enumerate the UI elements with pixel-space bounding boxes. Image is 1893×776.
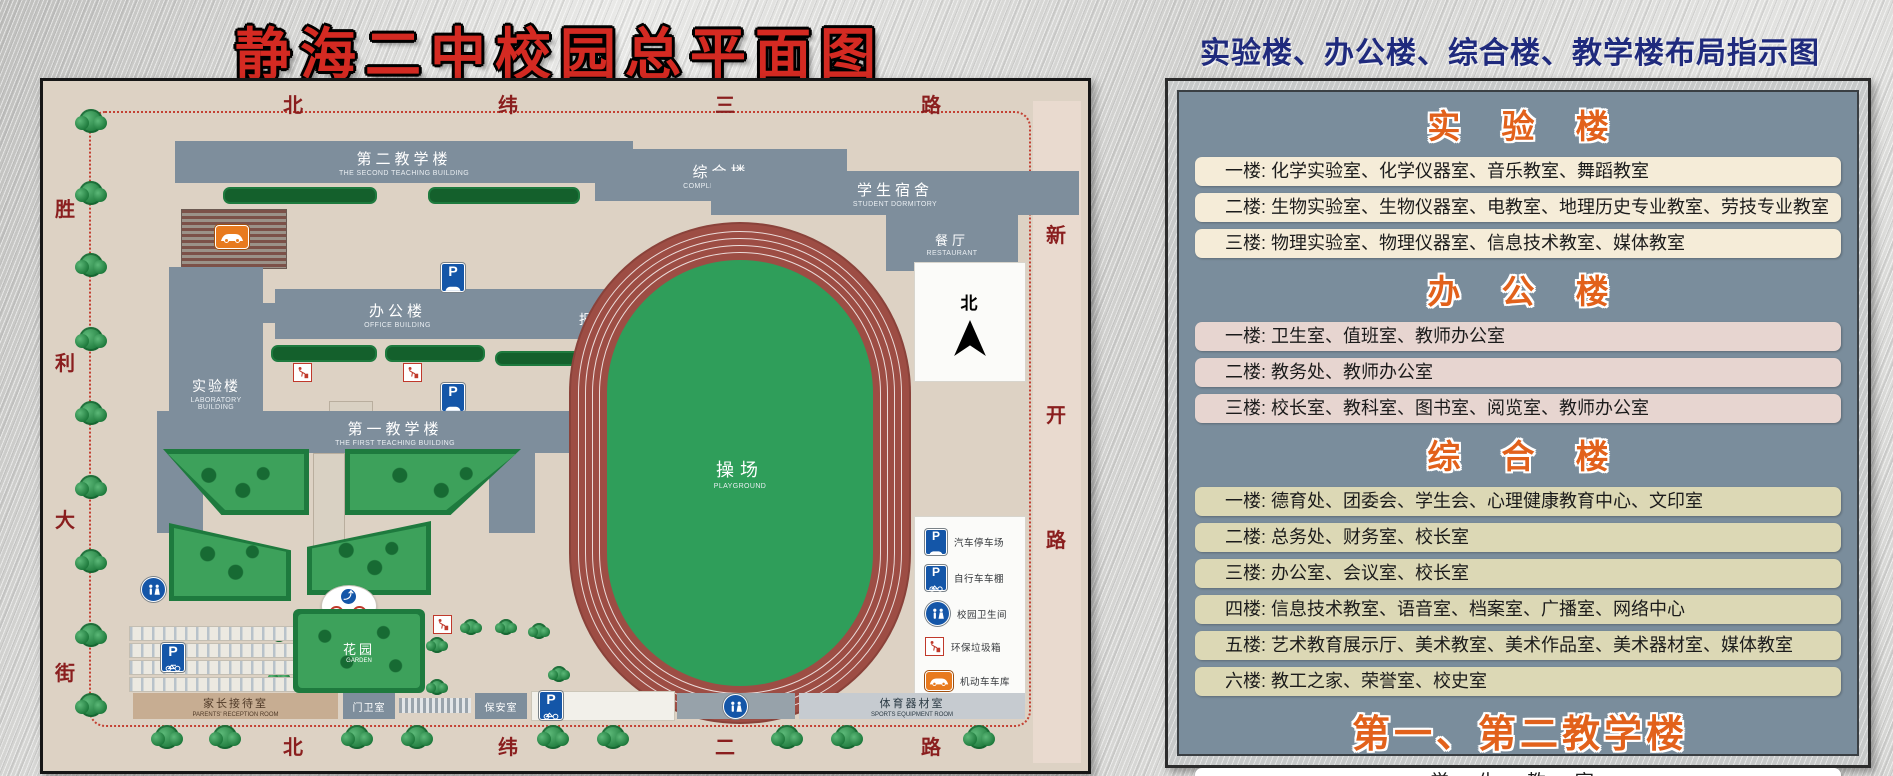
building-label: 第二教学楼 xyxy=(356,148,451,169)
tree-icon xyxy=(775,725,799,749)
floor-row: 一楼: 化学实验室、化学仪器室、音乐教室、舞蹈教室 xyxy=(1195,157,1841,186)
legend-label: 机动车车库 xyxy=(960,674,1010,688)
legend-item: P 汽车停车场 xyxy=(925,529,1004,555)
info-panel-frame: 实 验 楼 一楼: 化学实验室、化学仪器室、音乐教室、舞蹈教室 二楼: 生物实验… xyxy=(1165,78,1871,768)
trash-bin-icon xyxy=(925,637,944,656)
building-security-room: 保安室 xyxy=(475,693,527,719)
building-label: 办公楼 xyxy=(369,300,426,321)
hedge xyxy=(428,187,580,204)
section-heading-te aching: 第一、第二教学楼 xyxy=(1179,703,1857,758)
map-legend: P 汽车停车场 P 自行车车棚 校园卫生间 环保垃圾箱 机动车车库 xyxy=(915,517,1025,703)
north-indicator: 北 xyxy=(915,263,1025,381)
building-label-en: PARENTS' RECEPTION ROOM xyxy=(192,712,278,718)
floor-row: 三楼: 办公室、会议室、校长室 xyxy=(1195,559,1841,588)
campus-toilet-icon xyxy=(925,601,950,626)
hedge xyxy=(223,187,377,204)
building-label-en: STUDENT DORMITORY xyxy=(853,201,937,208)
info-panel: 实 验 楼 一楼: 化学实验室、化学仪器室、音乐教室、舞蹈教室 二楼: 生物实验… xyxy=(1177,90,1859,756)
floor-row: 二楼: 总务处、财务室、校长室 xyxy=(1195,523,1841,552)
tree-icon xyxy=(429,679,445,695)
gate-fence xyxy=(399,698,471,713)
turn-right-sign-icon: ⤴ xyxy=(341,589,356,604)
bicycle-shed-icon: P xyxy=(161,643,185,672)
building-label-en: LABORATORY BUILDING xyxy=(181,397,251,411)
building-label: 餐厅 xyxy=(935,230,969,249)
building-first-teaching: 第一教学楼 THE FIRST TEACHING BUILDING xyxy=(157,411,633,453)
bicycle-shed-icon: P xyxy=(539,691,563,720)
tree-icon xyxy=(79,327,103,351)
hedge xyxy=(271,345,377,362)
tree-icon xyxy=(79,181,103,205)
legend-item: 环保垃圾箱 xyxy=(925,637,1001,656)
legend-item: P 自行车车棚 xyxy=(925,565,1004,591)
playground-field: 操场 PLAYGROUND xyxy=(607,260,873,686)
building-label: 保安室 xyxy=(485,699,518,714)
garden-triangle xyxy=(163,449,309,515)
car-parking-icon: P xyxy=(925,529,947,555)
legend-label: 自行车车棚 xyxy=(954,571,1004,585)
floor-row: 四楼: 信息技术教室、语音室、档案室、广播室、网络中心 xyxy=(1195,595,1841,624)
garden: 花园 GARDEN xyxy=(293,609,425,693)
road-south-label: 北 xyxy=(283,731,303,760)
hedge xyxy=(385,345,485,362)
north-arrow-icon xyxy=(954,320,986,356)
campus-toilet-icon xyxy=(723,694,748,719)
floor-row: 二楼: 教务处、教师办公室 xyxy=(1195,358,1841,387)
building-label: 家长接待室 xyxy=(203,695,268,711)
road-north-label: 路 xyxy=(921,89,941,118)
building-label: 第一教学楼 xyxy=(347,418,442,439)
road-east-label: 路 xyxy=(1046,524,1066,553)
building-sports-equipment: 体育器材室 SPORTS EQUIPMENT ROOM xyxy=(799,693,1025,719)
trash-bin-icon xyxy=(293,363,312,382)
building-gate-room: 门卫室 xyxy=(343,693,395,719)
playground-label-en: PLAYGROUND xyxy=(714,483,767,490)
road-north-label: 纬 xyxy=(498,89,518,118)
road-north-label: 北 xyxy=(283,89,303,118)
tree-icon xyxy=(835,725,859,749)
building-label: 实验楼 xyxy=(192,376,240,396)
road-south-label: 路 xyxy=(921,731,941,760)
playground-label: 操场 xyxy=(716,456,764,482)
legend-item: 机动车车库 xyxy=(925,671,1010,691)
road-north-label: 三 xyxy=(715,89,735,118)
building-label: 体育器材室 xyxy=(880,695,945,711)
legend-item: 校园卫生间 xyxy=(925,601,1007,626)
road-east-label: 开 xyxy=(1046,399,1066,428)
tree-icon xyxy=(345,725,369,749)
floor-row: 五楼: 艺术教育展示厅、美术教室、美术作品室、美术器材室、媒体教室 xyxy=(1195,631,1841,660)
info-panel-title: 实验楼、办公楼、综合楼、教学楼布局指示图 xyxy=(1130,28,1890,72)
garden-label-en: GARDEN xyxy=(346,658,372,664)
tree-icon xyxy=(531,623,547,639)
tree-icon xyxy=(79,693,103,717)
tree-icon xyxy=(601,725,625,749)
tree-icon xyxy=(155,725,179,749)
floor-row: 一楼: 卫生室、值班室、教师办公室 xyxy=(1195,322,1841,351)
motor-garage-icon xyxy=(925,671,953,691)
section-heading-complex: 综 合 楼 xyxy=(1179,430,1857,478)
trash-bin-icon xyxy=(433,615,452,634)
building-label-en: THE FIRST TEACHING BUILDING xyxy=(335,440,455,447)
building-laboratory: 实验楼 LABORATORY BUILDING xyxy=(169,267,263,421)
building-second-teaching: 第二教学楼 THE SECOND TEACHING BUILDING xyxy=(175,141,633,183)
building-label: 学生宿舍 xyxy=(857,179,933,200)
road-south-label: 纬 xyxy=(498,731,518,760)
floor-row: 一楼: 德育处、团委会、学生会、心理健康教育中心、文印室 xyxy=(1195,487,1841,516)
tree-icon xyxy=(463,619,479,635)
legend-label: 环保垃圾箱 xyxy=(951,640,1001,654)
building-label-en: RESTAURANT xyxy=(927,250,978,257)
floor-row: 二楼: 生物实验室、生物仪器室、电教室、地理历史专业教室、劳技专业教室 xyxy=(1195,193,1841,222)
tree-icon xyxy=(79,253,103,277)
road-west-label: 胜 xyxy=(55,193,75,222)
building-label: 门卫室 xyxy=(353,699,386,714)
floor-row: 六楼: 教工之家、荣誉室、校史室 xyxy=(1195,667,1841,696)
road-west-label: 利 xyxy=(55,347,75,376)
campus-poster: 静海二中校园总平面图 北 纬 三 路 北 纬 二 路 胜 利 大 街 新 开 路 xyxy=(0,0,1893,776)
trash-bin-icon xyxy=(403,363,422,382)
campus-map: 北 纬 三 路 北 纬 二 路 胜 利 大 街 新 开 路 xyxy=(40,78,1091,774)
building-dormitory: 学生宿舍 STUDENT DORMITORY xyxy=(711,171,1079,215)
building-label-en: SPORTS EQUIPMENT ROOM xyxy=(871,712,953,718)
road-west-label: 街 xyxy=(55,657,75,686)
tree-icon xyxy=(541,725,565,749)
building-parents-reception: 家长接待室 PARENTS' RECEPTION ROOM xyxy=(133,693,338,719)
building-label-en: OFFICE BUILDING xyxy=(364,322,431,329)
tree-icon xyxy=(498,619,514,635)
north-label: 北 xyxy=(961,289,980,314)
section-heading-laboratory: 实 验 楼 xyxy=(1179,100,1857,148)
car-parking-icon: P xyxy=(441,383,465,412)
legend-label: 校园卫生间 xyxy=(957,607,1007,621)
tree-icon xyxy=(429,637,445,653)
tree-icon xyxy=(213,725,237,749)
floor-row: 三楼: 校长室、教科室、图书室、阅览室、教师办公室 xyxy=(1195,394,1841,423)
garden-triangle xyxy=(169,523,291,601)
tree-icon xyxy=(967,725,991,749)
tree-icon xyxy=(551,666,567,682)
bicycle-shed-icon: P xyxy=(925,565,947,591)
tree-icon xyxy=(79,549,103,573)
legend-label: 汽车停车场 xyxy=(954,535,1004,549)
classroom-row: 学 生 教 室 xyxy=(1195,768,1841,776)
garden-triangle xyxy=(307,521,431,595)
tree-icon xyxy=(79,623,103,647)
tree-icon xyxy=(79,401,103,425)
section-heading-office: 办 公 楼 xyxy=(1179,265,1857,313)
floor-row: 三楼: 物理实验室、物理仪器室、信息技术教室、媒体教室 xyxy=(1195,229,1841,258)
tree-icon xyxy=(79,109,103,133)
tree-icon xyxy=(79,475,103,499)
building-label-en: THE SECOND TEACHING BUILDING xyxy=(339,170,469,177)
car-parking-icon: P xyxy=(441,263,465,292)
tree-icon xyxy=(405,725,429,749)
motor-garage-icon xyxy=(215,225,249,249)
road-west-label: 大 xyxy=(55,504,75,533)
garden-label: 花园 xyxy=(343,639,375,658)
road-east-label: 新 xyxy=(1046,219,1066,248)
garden-triangle xyxy=(345,449,521,515)
campus-toilet-icon xyxy=(141,577,166,602)
road-south-label: 二 xyxy=(715,731,735,760)
running-track: 操场 PLAYGROUND xyxy=(571,224,909,722)
